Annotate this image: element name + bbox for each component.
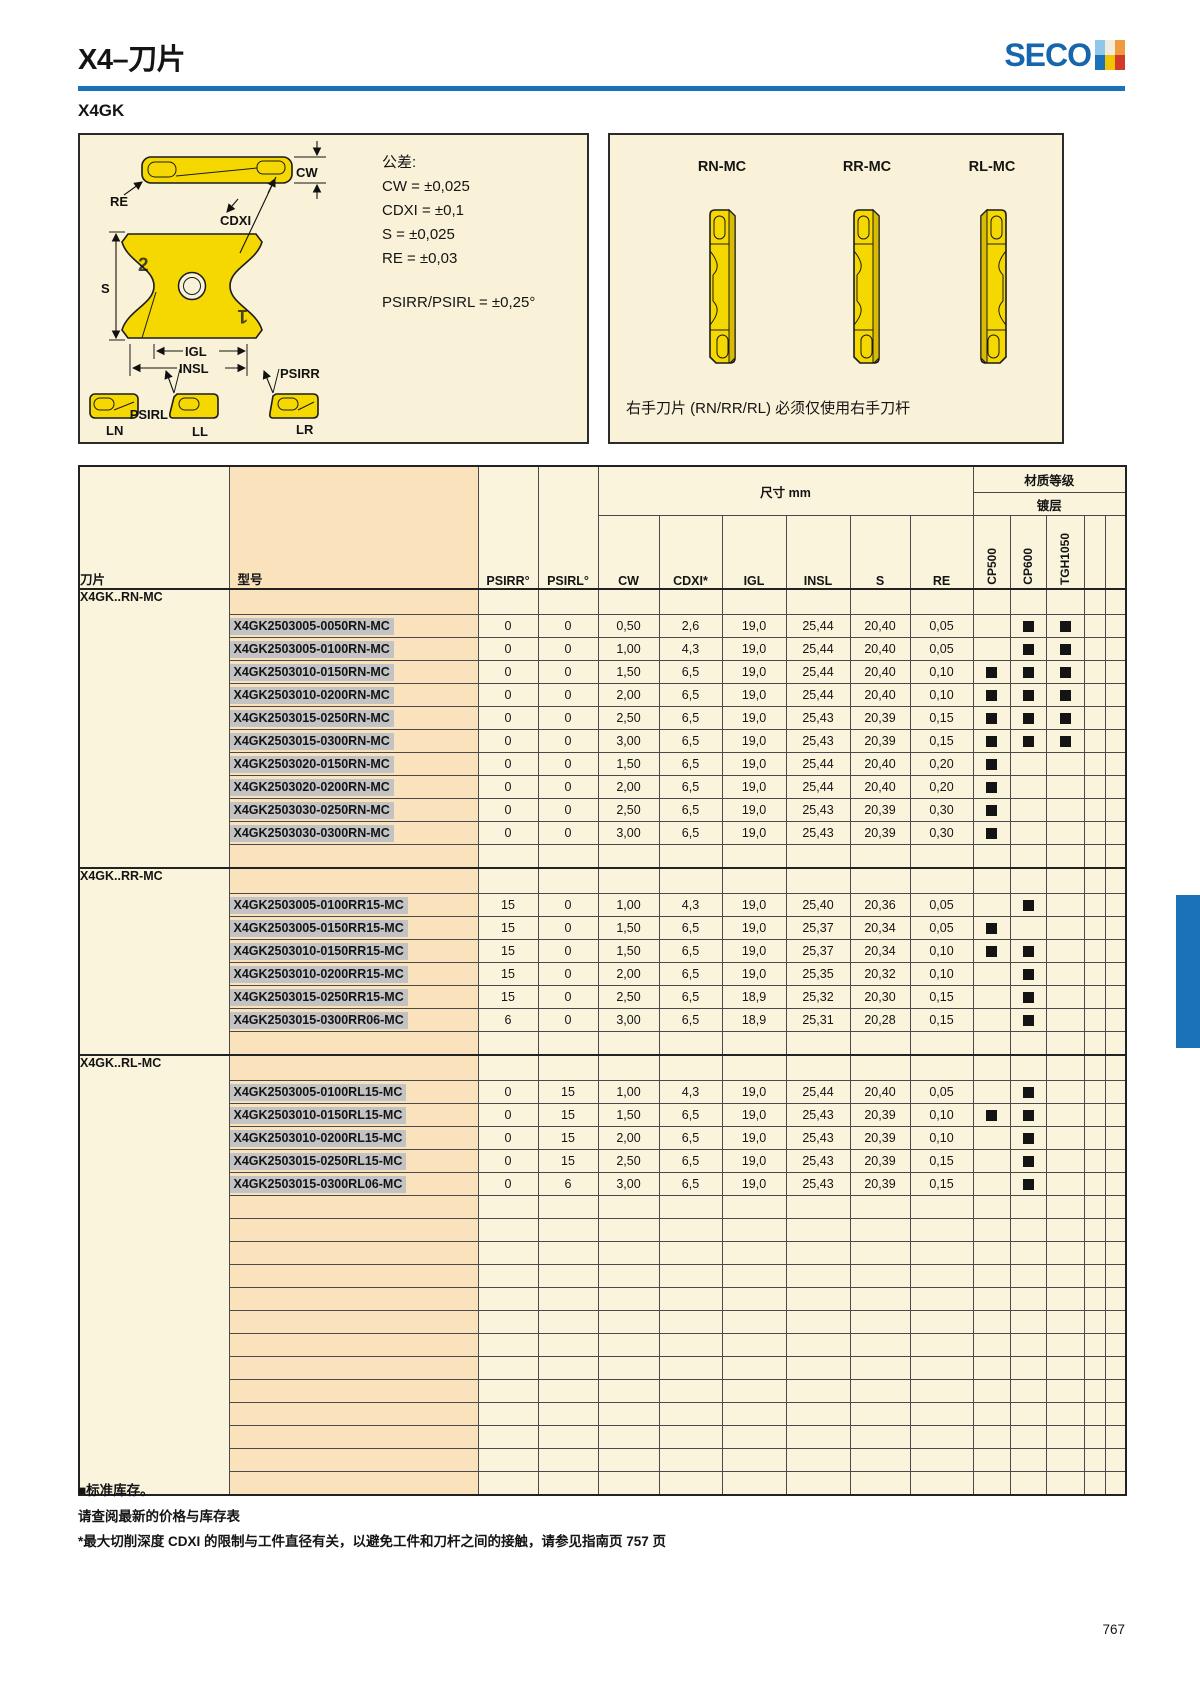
empty-cell: [1084, 1032, 1105, 1056]
value-cell: 25,43: [786, 822, 850, 845]
grade-cell: [1046, 1403, 1084, 1426]
value-cell: 0: [538, 963, 598, 986]
empty-cell: [1105, 661, 1126, 684]
part-number: X4GK2503010-0200RR15-MC: [230, 966, 408, 983]
value-cell: [850, 1288, 910, 1311]
insert-mark-2: 2: [138, 255, 149, 276]
table-row: X4GK2503030-0250RN-MC002,506,519,025,432…: [79, 799, 1126, 822]
col-header-psirr: PSIRR°: [478, 466, 538, 589]
value-cell: [786, 1032, 850, 1056]
value-cell: [659, 1449, 722, 1472]
value-cell: 0: [478, 799, 538, 822]
stock-square-icon: [1060, 644, 1071, 655]
value-cell: 0,30: [910, 822, 973, 845]
logo-mark-cell: [1095, 55, 1105, 70]
stock-square-icon: [1023, 1087, 1034, 1098]
empty-row: [79, 1449, 1126, 1472]
value-cell: 0,05: [910, 917, 973, 940]
value-cell: [786, 589, 850, 615]
empty-cell: [1084, 730, 1105, 753]
empty-row: [79, 1265, 1126, 1288]
model-cell: [229, 1311, 478, 1334]
value-cell: [722, 1032, 786, 1056]
value-cell: [478, 868, 538, 894]
value-cell: [850, 589, 910, 615]
value-cell: [478, 1403, 538, 1426]
value-cell: [910, 1311, 973, 1334]
col-header-insl: INSL: [786, 516, 850, 590]
value-cell: [478, 845, 538, 869]
value-cell: 0,10: [910, 684, 973, 707]
grade-cell: [1046, 1334, 1084, 1357]
value-cell: 6,5: [659, 1009, 722, 1032]
value-cell: [722, 1334, 786, 1357]
value-cell: 0: [478, 776, 538, 799]
value-cell: [850, 1311, 910, 1334]
grade-cell: [1046, 638, 1084, 661]
grade-cell: [973, 868, 1010, 894]
value-cell: 0: [538, 615, 598, 638]
value-cell: [659, 845, 722, 869]
empty-row: [79, 1196, 1126, 1219]
value-cell: 0: [478, 1150, 538, 1173]
model-cell: X4GK2503005-0100RL15-MC: [229, 1081, 478, 1104]
value-cell: [598, 1219, 659, 1242]
value-cell: 3,00: [598, 730, 659, 753]
grade-cell: [973, 986, 1010, 1009]
value-cell: 0,05: [910, 615, 973, 638]
part-number: X4GK2503010-0200RN-MC: [230, 687, 394, 704]
value-cell: [659, 1219, 722, 1242]
grade-cell: [1010, 1334, 1046, 1357]
model-cell: X4GK2503015-0250RL15-MC: [229, 1150, 478, 1173]
value-cell: [598, 1311, 659, 1334]
col-group-dimensions: 尺寸 mm: [598, 466, 973, 516]
grade-cell: [1046, 730, 1084, 753]
value-cell: [910, 589, 973, 615]
value-cell: [910, 1196, 973, 1219]
value-cell: [850, 1426, 910, 1449]
value-cell: [910, 1357, 973, 1380]
insert-image-rn: [710, 210, 735, 363]
col-header-empty: [1084, 516, 1105, 590]
table-row: X4GK2503005-0150RR15-MC1501,506,519,025,…: [79, 917, 1126, 940]
value-cell: 1,00: [598, 1081, 659, 1104]
empty-cell: [1105, 684, 1126, 707]
header-rule: [78, 86, 1125, 91]
value-cell: [478, 1311, 538, 1334]
col-header-igl: IGL: [722, 516, 786, 590]
empty-row: [79, 1219, 1126, 1242]
model-cell: X4GK2503015-0300RL06-MC: [229, 1173, 478, 1196]
table-row: X4GK2503015-0250RR15-MC1502,506,518,925,…: [79, 986, 1126, 1009]
grade-cell: [1010, 1150, 1046, 1173]
dim-label-insl: INSL: [179, 361, 209, 376]
grade-cell: [1010, 1196, 1046, 1219]
value-cell: [722, 1380, 786, 1403]
model-cell: [229, 1265, 478, 1288]
value-cell: 6,5: [659, 707, 722, 730]
grade-cell: [973, 707, 1010, 730]
dim-label-psirr: PSIRR: [280, 366, 320, 381]
grade-cell: [1010, 638, 1046, 661]
value-cell: 6,5: [659, 776, 722, 799]
stock-square-icon: [986, 736, 997, 747]
tolerance-line: CW = ±0,025: [382, 175, 535, 199]
grade-cell: [1046, 1219, 1084, 1242]
value-cell: 19,0: [722, 1081, 786, 1104]
grade-cell: [973, 776, 1010, 799]
grade-cell: [1046, 986, 1084, 1009]
part-number: X4GK2503015-0300RN-MC: [230, 733, 394, 750]
empty-cell: [1084, 894, 1105, 917]
value-cell: 20,39: [850, 707, 910, 730]
empty-cell: [1105, 776, 1126, 799]
grade-cell: [1046, 661, 1084, 684]
grade-cell: [973, 615, 1010, 638]
value-cell: [850, 868, 910, 894]
value-cell: 20,39: [850, 1173, 910, 1196]
grade-cell: [1046, 917, 1084, 940]
grade-cell: [973, 1150, 1010, 1173]
value-cell: [538, 1449, 598, 1472]
value-cell: 19,0: [722, 684, 786, 707]
empty-cell: [1084, 986, 1105, 1009]
model-cell: [229, 1334, 478, 1357]
value-cell: [722, 1449, 786, 1472]
value-cell: [538, 1242, 598, 1265]
value-cell: 20,40: [850, 776, 910, 799]
grade-cell: [1010, 868, 1046, 894]
insert-image-rr: [854, 210, 879, 363]
part-number: X4GK2503010-0150RL15-MC: [230, 1107, 407, 1124]
value-cell: [786, 1265, 850, 1288]
grade-cell: [1046, 868, 1084, 894]
value-cell: [538, 1055, 598, 1081]
dim-label-re: RE: [110, 194, 128, 209]
grade-cell: [973, 1334, 1010, 1357]
group-header-row: X4GK..RR-MC: [79, 868, 1126, 894]
value-cell: 19,0: [722, 917, 786, 940]
value-cell: 2,00: [598, 684, 659, 707]
value-cell: 2,50: [598, 986, 659, 1009]
insert-type-cell: X4GK..RN-MC: [79, 589, 229, 868]
value-cell: 25,31: [786, 1009, 850, 1032]
empty-cell: [1105, 589, 1126, 615]
value-cell: [910, 1380, 973, 1403]
empty-cell: [1105, 1380, 1126, 1403]
value-cell: [659, 1334, 722, 1357]
table-row: X4GK2503010-0200RR15-MC1502,006,519,025,…: [79, 963, 1126, 986]
grade-cell: [1010, 822, 1046, 845]
value-cell: 0,15: [910, 730, 973, 753]
col-header-cp500: CP500: [973, 516, 1010, 590]
value-cell: 15: [538, 1127, 598, 1150]
value-cell: 0,05: [910, 638, 973, 661]
part-number: X4GK2503020-0150RN-MC: [230, 756, 394, 773]
value-cell: 15: [478, 940, 538, 963]
stock-square-icon: [986, 828, 997, 839]
value-cell: [910, 1288, 973, 1311]
value-cell: [659, 1311, 722, 1334]
grade-cell: [1010, 1449, 1046, 1472]
value-cell: 25,43: [786, 1127, 850, 1150]
page-number: 767: [1102, 1622, 1125, 1637]
stock-square-icon: [1023, 713, 1034, 724]
value-cell: [722, 1288, 786, 1311]
part-number: X4GK2503005-0150RR15-MC: [230, 920, 408, 937]
value-cell: [478, 1380, 538, 1403]
grade-cell: [1010, 1009, 1046, 1032]
empty-cell: [1105, 1081, 1126, 1104]
table-row: X4GK2503015-0300RN-MC003,006,519,025,432…: [79, 730, 1126, 753]
tolerance-heading: 公差:: [382, 151, 535, 175]
grade-cell: [1010, 1081, 1046, 1104]
grade-cell: [1046, 845, 1084, 869]
model-cell: X4GK2503005-0100RN-MC: [229, 638, 478, 661]
stock-square-icon: [1023, 1133, 1034, 1144]
tolerance-line: CDXI = ±0,1: [382, 199, 535, 223]
empty-cell: [1105, 753, 1126, 776]
value-cell: 19,0: [722, 1127, 786, 1150]
value-cell: 20,39: [850, 1127, 910, 1150]
grade-cell: [1046, 1242, 1084, 1265]
grade-cell: [973, 730, 1010, 753]
value-cell: [850, 1449, 910, 1472]
value-cell: [910, 1472, 973, 1496]
col-header-cp600: CP600: [1010, 516, 1046, 590]
value-cell: [659, 1265, 722, 1288]
empty-cell: [1084, 1173, 1105, 1196]
value-cell: 19,0: [722, 799, 786, 822]
empty-cell: [1105, 1265, 1126, 1288]
value-cell: 19,0: [722, 753, 786, 776]
value-cell: 2,50: [598, 799, 659, 822]
value-cell: 19,0: [722, 1150, 786, 1173]
value-cell: 0: [538, 753, 598, 776]
value-cell: [786, 1196, 850, 1219]
value-cell: [538, 1311, 598, 1334]
grade-cell: [1046, 589, 1084, 615]
stock-square-icon: [1023, 621, 1034, 632]
value-cell: 0,10: [910, 1104, 973, 1127]
catalog-page: X4–刀片 SECO X4GK CW RE: [0, 0, 1200, 1697]
value-cell: [786, 1357, 850, 1380]
value-cell: [538, 1288, 598, 1311]
grade-cell: [973, 638, 1010, 661]
spacer-row: [79, 1032, 1126, 1056]
value-cell: 20,39: [850, 822, 910, 845]
empty-row: [79, 1357, 1126, 1380]
value-cell: 25,44: [786, 753, 850, 776]
model-cell: X4GK2503010-0150RR15-MC: [229, 940, 478, 963]
value-cell: 0,20: [910, 753, 973, 776]
value-cell: 0,50: [598, 615, 659, 638]
value-cell: [722, 1357, 786, 1380]
empty-cell: [1084, 1196, 1105, 1219]
empty-cell: [1105, 1403, 1126, 1426]
spacer-row: [79, 845, 1126, 869]
grade-cell: [1010, 940, 1046, 963]
value-cell: [910, 1242, 973, 1265]
grade-cell: [1010, 1104, 1046, 1127]
value-cell: [659, 1426, 722, 1449]
value-cell: [538, 868, 598, 894]
value-cell: [538, 1380, 598, 1403]
grade-cell: [1010, 986, 1046, 1009]
grade-cell: [1010, 1426, 1046, 1449]
value-cell: [598, 1242, 659, 1265]
grade-cell: [1010, 684, 1046, 707]
empty-row: [79, 1242, 1126, 1265]
grade-cell: [1010, 1242, 1046, 1265]
value-cell: [598, 1380, 659, 1403]
seco-logo-mark-icon: [1095, 40, 1125, 70]
footnote-price-list: 请查阅最新的价格与库存表: [78, 1504, 666, 1530]
model-cell: [229, 1357, 478, 1380]
value-cell: 19,0: [722, 707, 786, 730]
table-row: X4GK2503015-0300RR06-MC603,006,518,925,3…: [79, 1009, 1126, 1032]
stock-square-icon: [1060, 690, 1071, 701]
value-cell: 0,05: [910, 1081, 973, 1104]
value-cell: [722, 1472, 786, 1496]
value-cell: 2,00: [598, 963, 659, 986]
value-cell: [598, 845, 659, 869]
value-cell: 25,40: [786, 894, 850, 917]
value-cell: 18,9: [722, 1009, 786, 1032]
value-cell: [598, 1403, 659, 1426]
empty-row: [79, 1288, 1126, 1311]
value-cell: 6,5: [659, 822, 722, 845]
logo-mark-cell: [1105, 40, 1115, 55]
part-number: X4GK2503015-0250RN-MC: [230, 710, 394, 727]
grade-cell: [1046, 1426, 1084, 1449]
table-row: X4GK2503005-0100RL15-MC0151,004,319,025,…: [79, 1081, 1126, 1104]
value-cell: 15: [538, 1150, 598, 1173]
value-cell: [722, 1055, 786, 1081]
model-cell: X4GK2503010-0200RL15-MC: [229, 1127, 478, 1150]
value-cell: 20,39: [850, 1150, 910, 1173]
empty-cell: [1105, 1009, 1126, 1032]
empty-cell: [1105, 822, 1126, 845]
grade-cell: [973, 661, 1010, 684]
stock-square-icon: [1023, 900, 1034, 911]
part-number: X4GK2503030-0250RN-MC: [230, 802, 394, 819]
value-cell: 20,40: [850, 753, 910, 776]
empty-cell: [1105, 799, 1126, 822]
value-cell: [598, 1265, 659, 1288]
value-cell: 0,15: [910, 707, 973, 730]
value-cell: 6,5: [659, 661, 722, 684]
empty-cell: [1084, 1081, 1105, 1104]
empty-cell: [1084, 940, 1105, 963]
grade-cell: [1010, 730, 1046, 753]
value-cell: 0,30: [910, 799, 973, 822]
empty-cell: [1105, 1242, 1126, 1265]
model-cell: [229, 1196, 478, 1219]
value-cell: [850, 1219, 910, 1242]
group-label: X4GK..RR-MC: [80, 869, 229, 883]
value-cell: 19,0: [722, 940, 786, 963]
col-group-coating: 镀层: [973, 493, 1126, 516]
grade-cell: [973, 845, 1010, 869]
value-cell: 6: [538, 1173, 598, 1196]
grade-cell: [973, 1380, 1010, 1403]
tolerance-angle-line: PSIRR/PSIRL = ±0,25°: [382, 291, 535, 315]
grade-cell: [973, 753, 1010, 776]
value-cell: [478, 1426, 538, 1449]
stock-square-icon: [986, 923, 997, 934]
grade-cell: [973, 1219, 1010, 1242]
grade-cell: [1046, 684, 1084, 707]
stock-square-icon: [986, 805, 997, 816]
value-cell: [850, 1242, 910, 1265]
value-cell: 0: [538, 638, 598, 661]
value-cell: 1,50: [598, 753, 659, 776]
grade-cell: [973, 1055, 1010, 1081]
grade-cell: [1046, 1196, 1084, 1219]
stock-square-icon: [1060, 736, 1071, 747]
value-cell: [478, 1357, 538, 1380]
value-cell: 20,34: [850, 940, 910, 963]
value-cell: [659, 1403, 722, 1426]
value-cell: 1,50: [598, 1104, 659, 1127]
value-cell: [910, 1334, 973, 1357]
grade-cell: [1046, 1173, 1084, 1196]
stock-square-icon: [1023, 667, 1034, 678]
value-cell: 1,50: [598, 940, 659, 963]
grade-cell: [973, 1127, 1010, 1150]
seco-logo-text: SECO: [1004, 40, 1091, 70]
value-cell: 0: [478, 822, 538, 845]
grade-cell: [1046, 1449, 1084, 1472]
model-cell: [229, 1032, 478, 1056]
grade-cell: [1010, 1403, 1046, 1426]
empty-cell: [1084, 1426, 1105, 1449]
value-cell: [598, 868, 659, 894]
grade-cell: [1010, 799, 1046, 822]
empty-cell: [1084, 1127, 1105, 1150]
value-cell: 25,43: [786, 707, 850, 730]
value-cell: 0: [538, 1009, 598, 1032]
empty-cell: [1105, 845, 1126, 869]
grade-cell: [1046, 1081, 1084, 1104]
value-cell: [722, 1265, 786, 1288]
grade-cell: [1010, 776, 1046, 799]
value-cell: [478, 1288, 538, 1311]
grade-cell: [1010, 1311, 1046, 1334]
table-row: X4GK2503010-0150RR15-MC1501,506,519,025,…: [79, 940, 1126, 963]
empty-cell: [1084, 1288, 1105, 1311]
value-cell: 0: [478, 1081, 538, 1104]
value-cell: 20,40: [850, 684, 910, 707]
value-cell: [659, 1288, 722, 1311]
value-cell: 25,43: [786, 1104, 850, 1127]
value-cell: 6,5: [659, 799, 722, 822]
value-cell: [850, 1403, 910, 1426]
value-cell: [478, 1242, 538, 1265]
empty-cell: [1084, 589, 1105, 615]
seco-logo: SECO: [1004, 40, 1125, 70]
value-cell: 6,5: [659, 1104, 722, 1127]
value-cell: 0,20: [910, 776, 973, 799]
value-cell: 0,15: [910, 1150, 973, 1173]
value-cell: [786, 1242, 850, 1265]
value-cell: [850, 845, 910, 869]
empty-cell: [1084, 1472, 1105, 1496]
empty-cell: [1105, 615, 1126, 638]
table-row: X4GK2503005-0100RN-MC001,004,319,025,442…: [79, 638, 1126, 661]
